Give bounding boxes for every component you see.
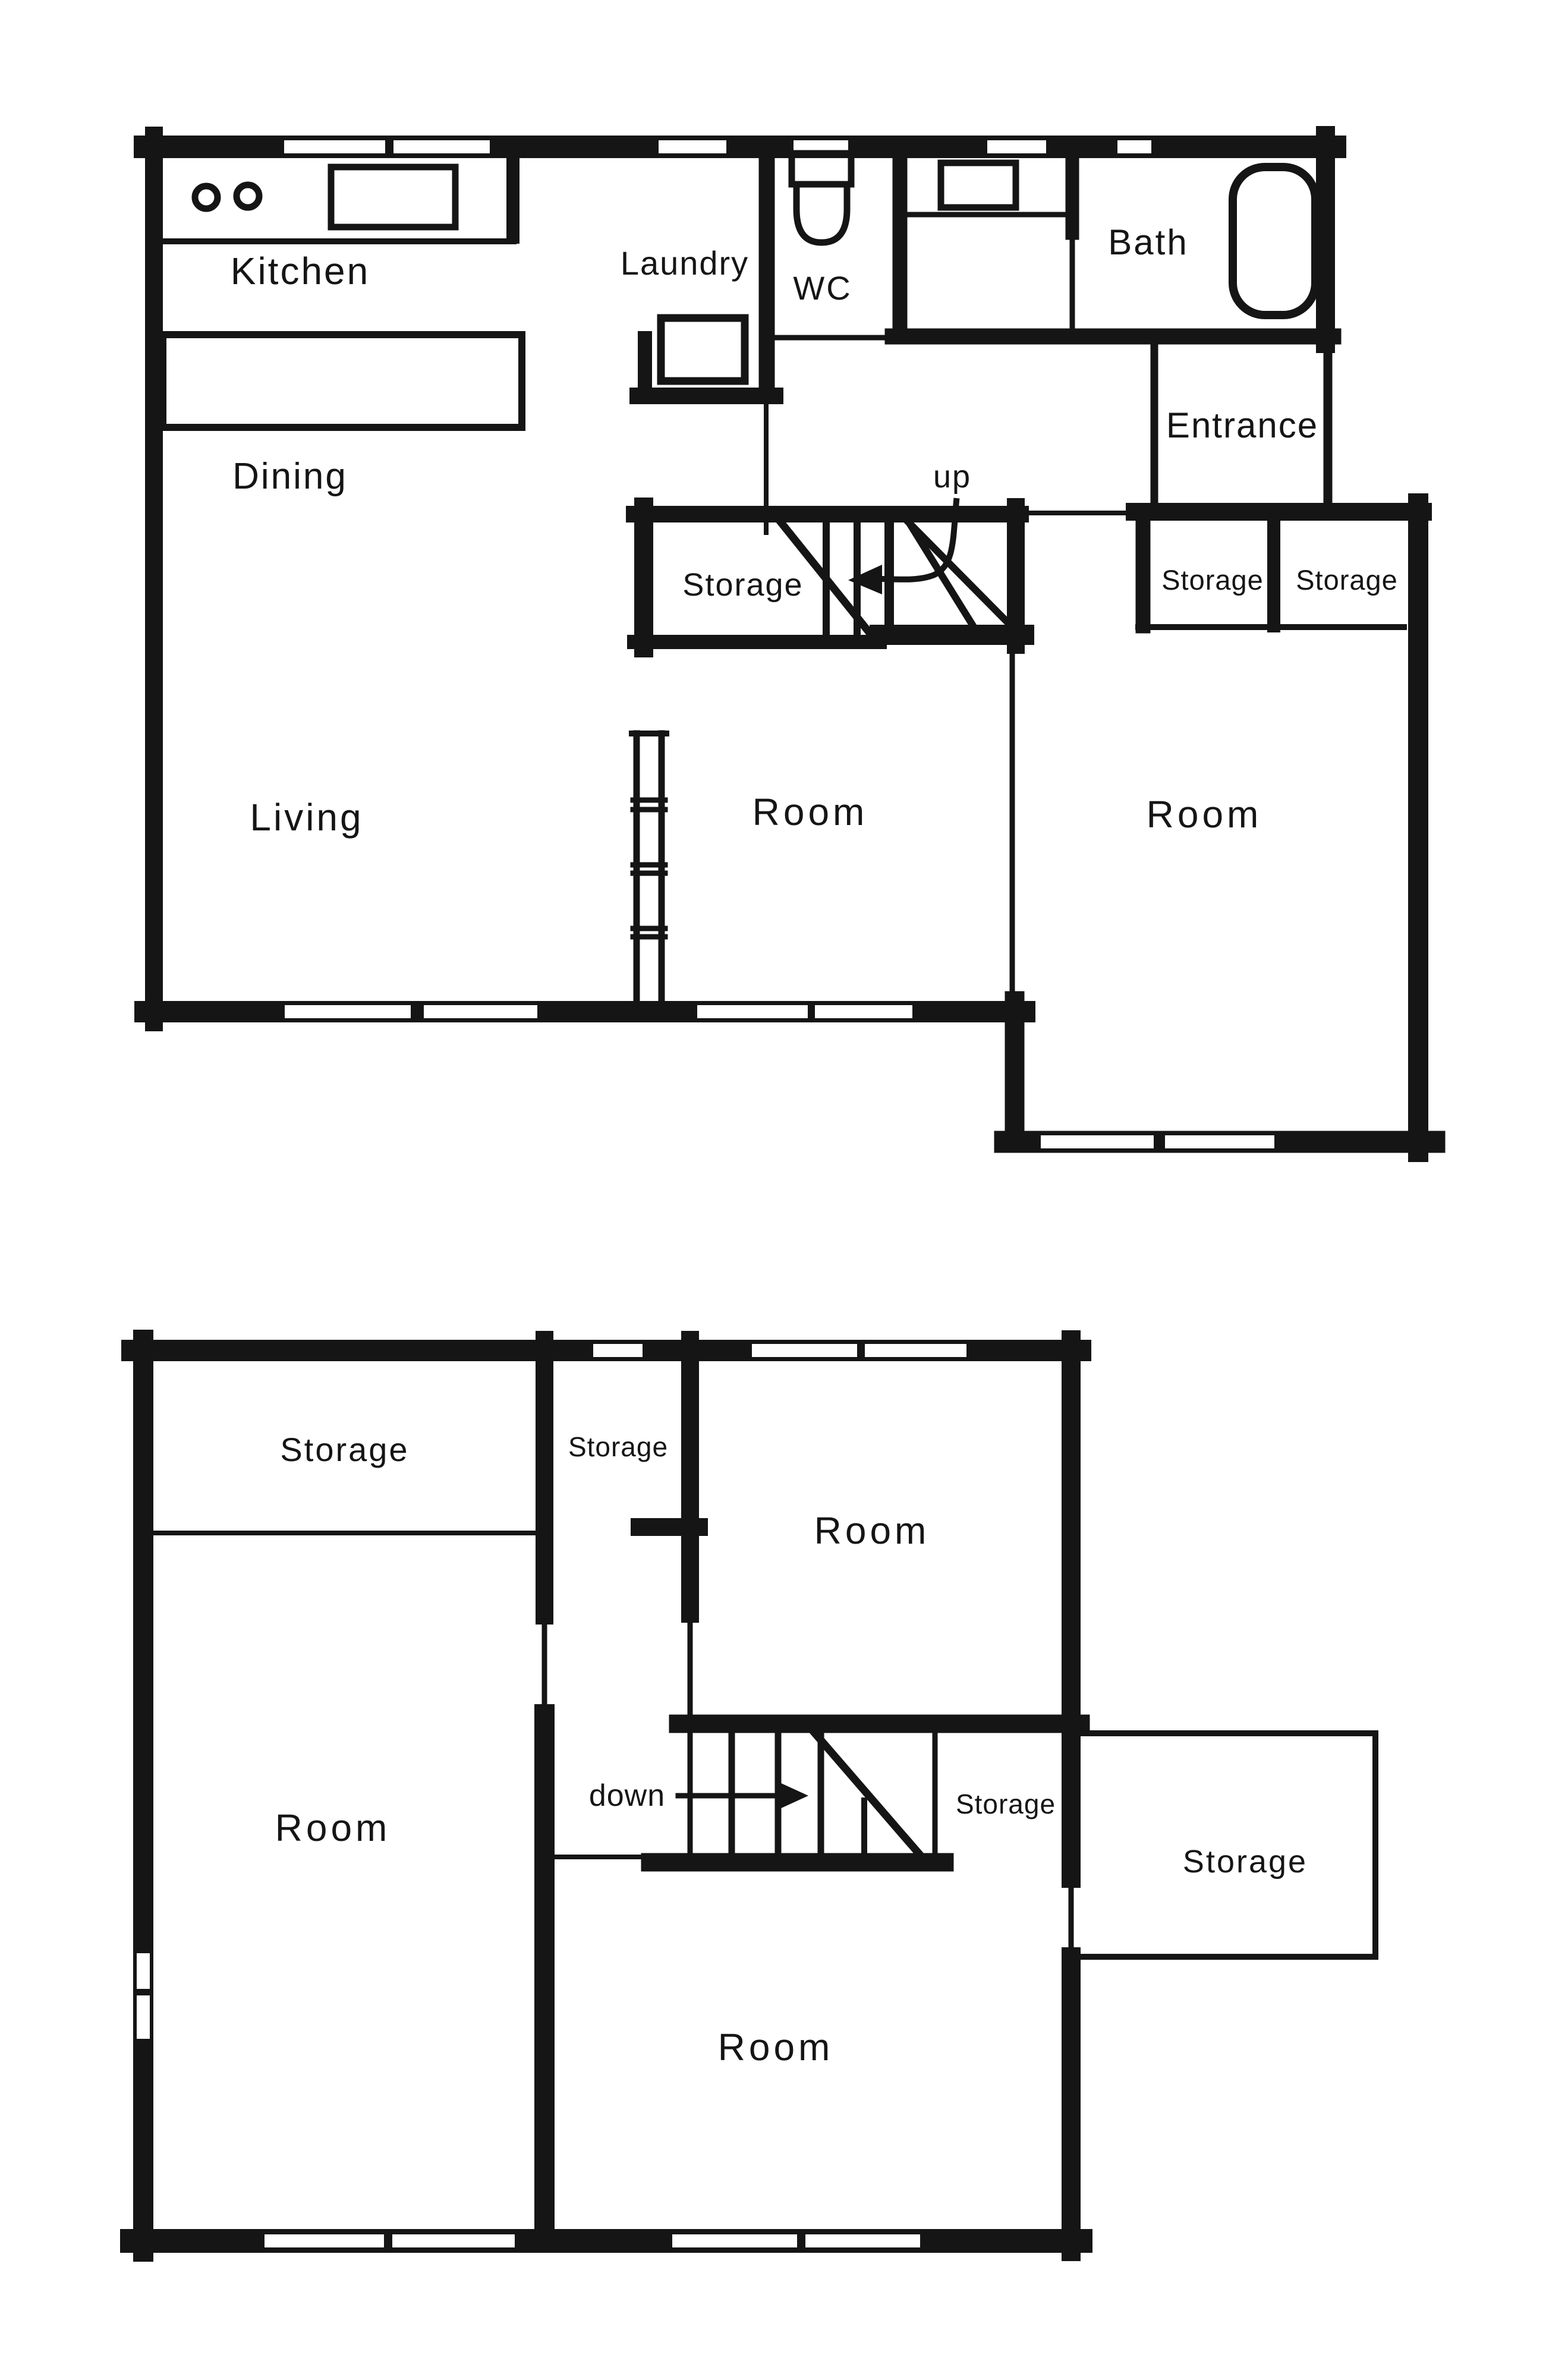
svg-text:Storage: Storage [682, 567, 803, 603]
svg-text:Dining: Dining [232, 456, 348, 497]
svg-text:Storage: Storage [568, 1431, 668, 1462]
svg-text:Room: Room [1147, 793, 1262, 836]
svg-text:Storage: Storage [1296, 564, 1398, 596]
svg-text:Kitchen: Kitchen [231, 250, 370, 292]
svg-text:WC: WC [793, 269, 852, 307]
svg-text:Storage: Storage [1183, 1844, 1308, 1880]
svg-text:Storage: Storage [956, 1789, 1056, 1819]
svg-text:Room: Room [275, 1806, 391, 1849]
svg-text:Room: Room [718, 2026, 834, 2069]
svg-text:Storage: Storage [280, 1431, 409, 1468]
svg-text:down: down [589, 1778, 665, 1813]
svg-text:Laundry: Laundry [621, 244, 749, 282]
svg-text:Storage: Storage [1161, 564, 1264, 596]
svg-text:Room: Room [752, 791, 868, 833]
svg-text:Entrance: Entrance [1166, 405, 1318, 445]
svg-text:up: up [933, 459, 971, 495]
svg-text:Room: Room [814, 1509, 930, 1552]
svg-text:Bath: Bath [1108, 222, 1188, 262]
svg-text:Living: Living [250, 796, 363, 839]
